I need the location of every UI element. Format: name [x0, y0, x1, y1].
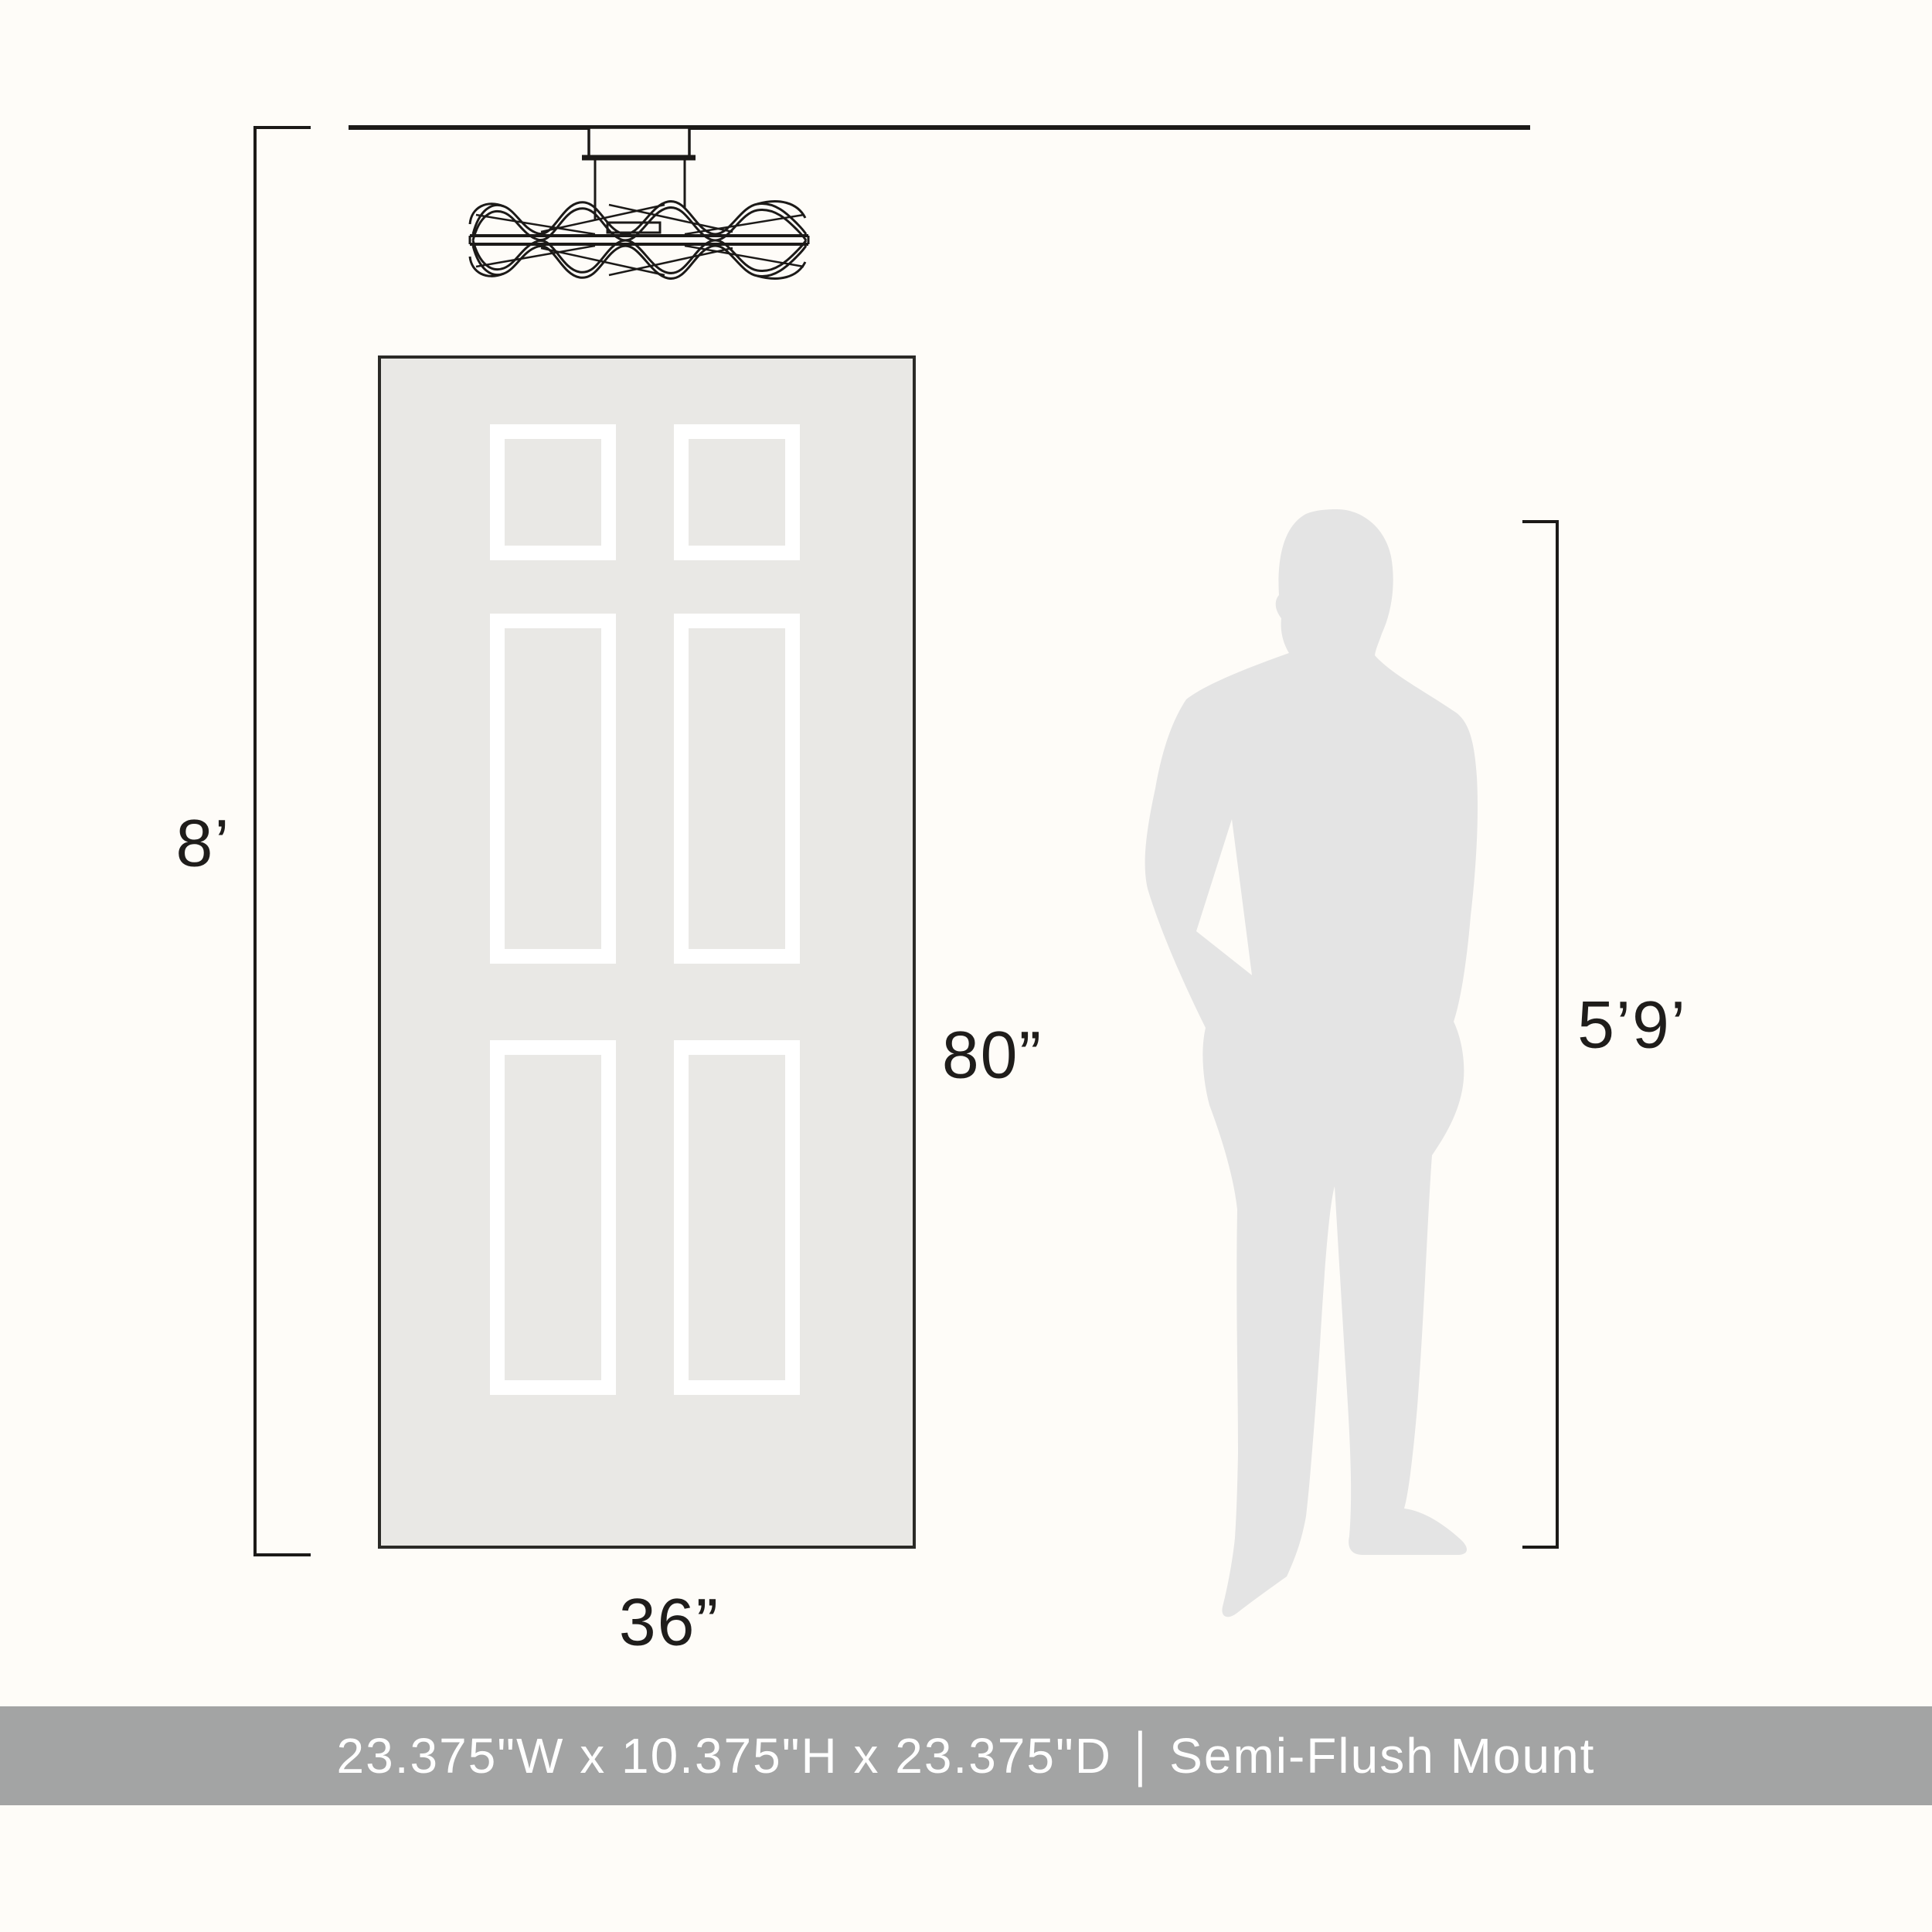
door-panel	[490, 614, 616, 964]
product-mount-type: Semi-Flush Mount	[1169, 1727, 1595, 1784]
product-dimensions-text: 23.375"W x 10.375"H x 23.375"D	[337, 1727, 1112, 1784]
ceiling-height-label: 8’	[176, 806, 231, 883]
door-panel	[674, 614, 800, 964]
ceiling-light-fixture-icon	[470, 128, 808, 278]
door-panel	[674, 1040, 800, 1395]
person-height-label: 5’9’	[1577, 988, 1687, 1064]
door-width-label: 36”	[619, 1585, 719, 1662]
door-panel	[490, 1040, 616, 1395]
banner-separator: |	[1134, 1719, 1148, 1789]
door-panel	[674, 424, 800, 560]
door-panel	[490, 424, 616, 560]
product-dimensions-banner: 23.375"W x 10.375"H x 23.375"D | Semi-Fl…	[0, 1706, 1932, 1805]
fixture-canopy	[589, 128, 689, 157]
person-silhouette	[1145, 509, 1478, 1617]
door-slab	[379, 357, 914, 1547]
door-illustration	[379, 357, 914, 1547]
ceiling-height-dimension-line	[255, 128, 311, 1555]
door-height-label: 80”	[942, 1018, 1043, 1094]
dimension-diagram: 8’ 80” 36” 5’9’ 23.375"W x 10.375"H x 23…	[0, 0, 1932, 1932]
diagram-line-art	[0, 0, 1932, 1932]
fixture-wave-shade	[470, 202, 808, 279]
person-height-dimension-line	[1522, 522, 1557, 1547]
